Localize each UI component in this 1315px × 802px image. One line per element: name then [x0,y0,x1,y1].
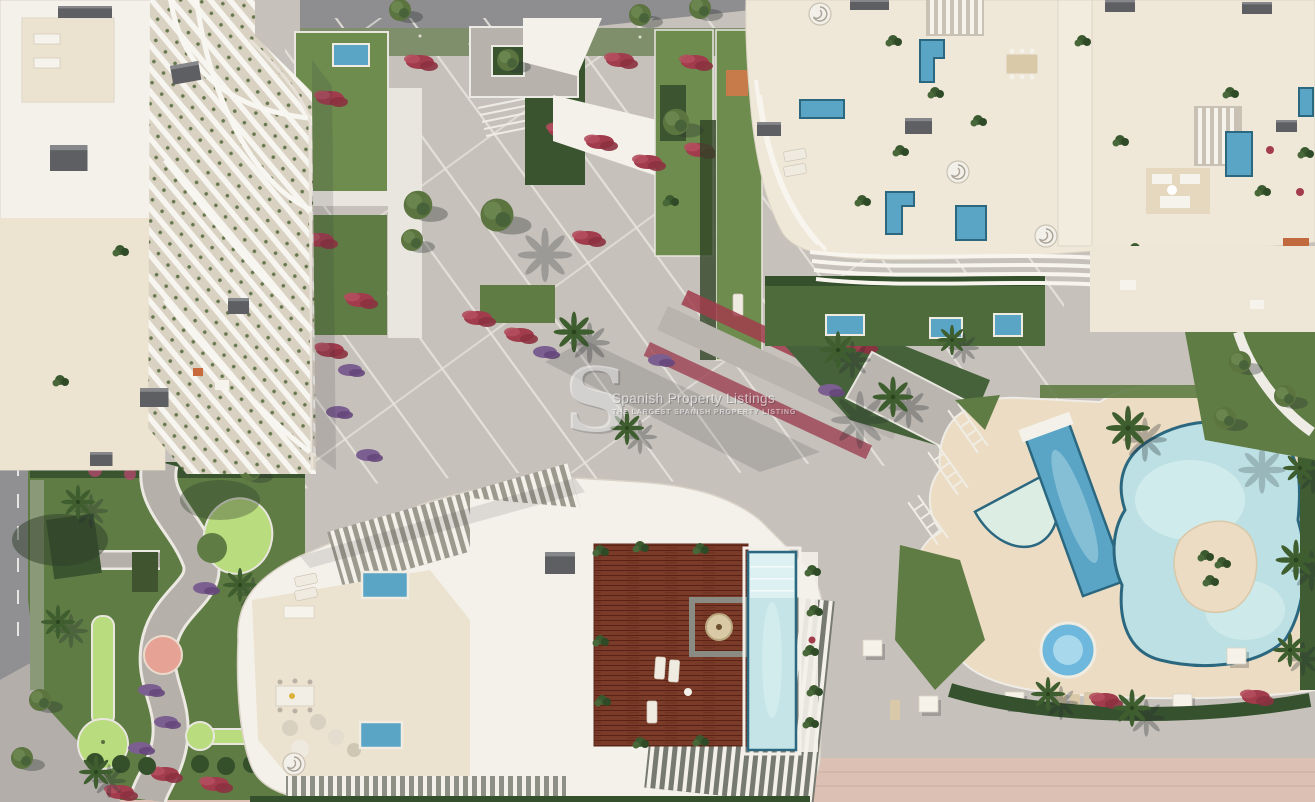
tree-shadow [12,514,108,566]
pool-step-line [750,566,794,568]
palm-shadow [831,391,889,449]
rooftop-dining-table [1006,49,1038,80]
palm-shadow [518,228,572,282]
pool-step-line [750,590,794,592]
spiral-stair [1035,225,1057,247]
ac-unit [140,388,169,407]
ac-unit [90,452,113,466]
terrace-chair-orange [193,368,203,376]
ac-unit [58,6,112,18]
pink-circle-feature [144,636,182,674]
minigolf-green [186,722,214,750]
ac-unit [757,122,781,136]
aerial-property-render: S S Spanish Property Listings Spanish Pr… [0,0,1315,802]
pouf [282,720,298,736]
green-pergola-small [132,552,158,592]
ac-unit [228,298,249,314]
table-decor [289,693,295,699]
edge-flowers [809,637,816,644]
terrace-sofa [284,606,314,618]
dining-table-orange [726,70,748,96]
terrace-cream [252,570,470,790]
rooftop-plunge-pool [360,722,402,748]
deck-side-table [684,688,692,696]
render-canvas: S S Spanish Property Listings Spanish Pr… [0,0,1315,802]
putting-green-notch [197,533,227,563]
pool-step-line [750,578,794,580]
sun-lounger [647,701,657,723]
terrace-sofa [1120,280,1136,290]
terrace-sofa [1180,174,1200,184]
terrace-sofa [1160,196,1190,208]
base-hedge [250,796,810,802]
sun-lounger [34,58,60,68]
minigolf-lane [92,616,114,726]
tree-shadow [180,480,260,520]
slat-fence [286,776,566,796]
sun-lounger [668,660,680,683]
garden-pool [333,44,369,66]
block-gap [1058,0,1092,246]
sun-lounger [654,657,666,680]
ac-unit [1105,0,1135,12]
ac-unit [545,552,575,574]
spiral-stair [947,161,969,183]
ac-unit [1242,2,1272,14]
ac-unit [1276,120,1297,132]
parasol [1227,648,1249,668]
parasol [863,640,885,660]
spiral-stair [809,3,831,25]
spiral-stair [283,753,305,775]
terrace-table [1167,185,1177,195]
ac-unit [850,0,889,10]
pouf [310,714,326,730]
kids-pool-center [1053,635,1083,665]
watermark-title: Spanish Property Listings [612,391,775,406]
ac-unit [905,118,932,134]
terrace-level [0,218,165,470]
wooden-deck [594,544,748,746]
terrace-sofa [215,380,229,390]
pergola-slats [926,0,984,36]
rooftop-plunge-pool [362,572,408,598]
white-flower-hedge [30,480,44,690]
pouf [328,729,344,745]
sun-lounger [34,34,60,44]
parasol [919,696,941,716]
terrace-sofa [1250,300,1264,309]
deck-table [716,624,722,630]
water-highlight [762,602,782,718]
watermark-tagline: THE LARGEST SPANISH PROPERTY LISTING [612,409,796,416]
golf-hole [101,740,105,744]
ac-unit [50,145,88,171]
terrace-sofa [1152,174,1172,184]
